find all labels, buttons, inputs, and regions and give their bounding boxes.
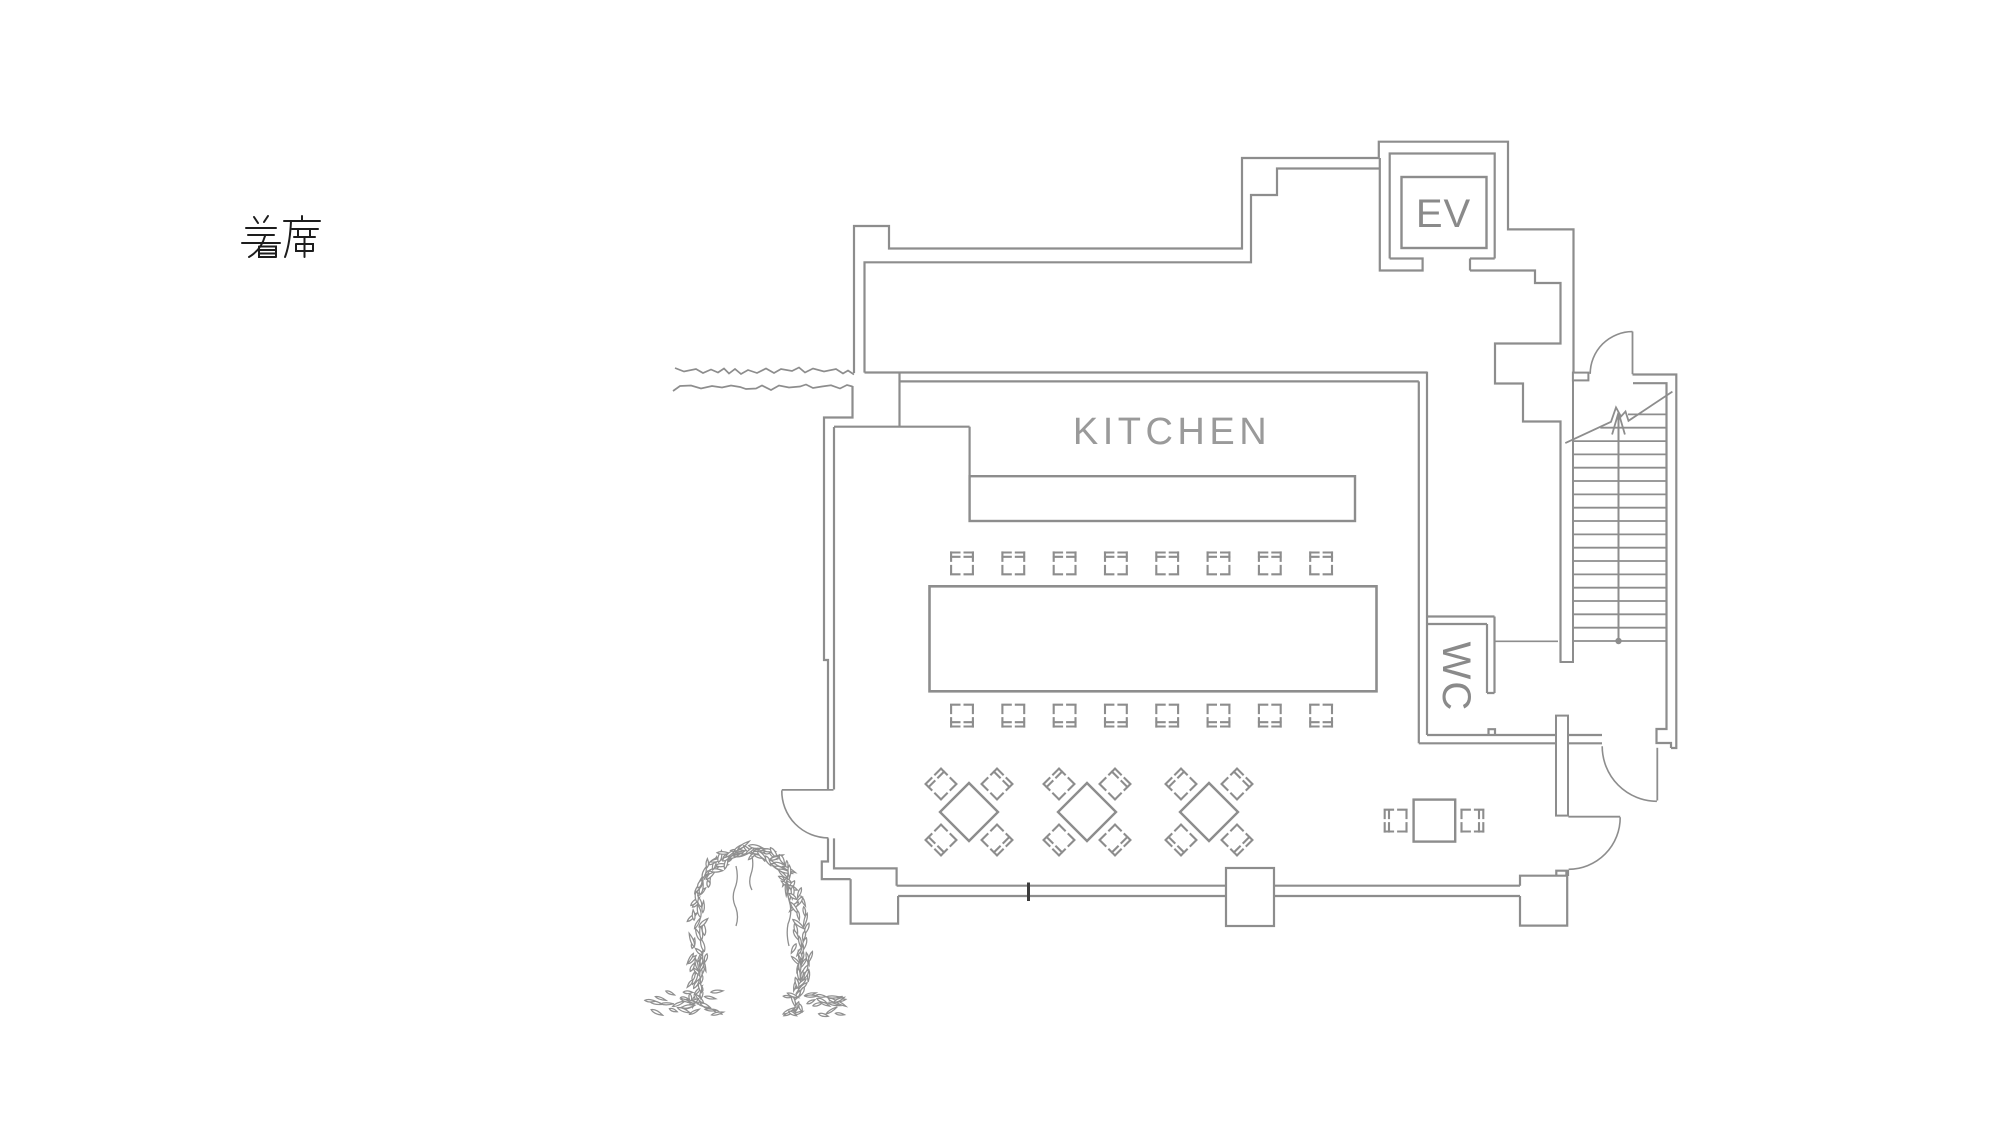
svg-text:KITCHEN: KITCHEN [1073, 411, 1271, 453]
svg-text:WC: WC [1434, 642, 1478, 713]
svg-text:EV: EV [1416, 192, 1471, 236]
